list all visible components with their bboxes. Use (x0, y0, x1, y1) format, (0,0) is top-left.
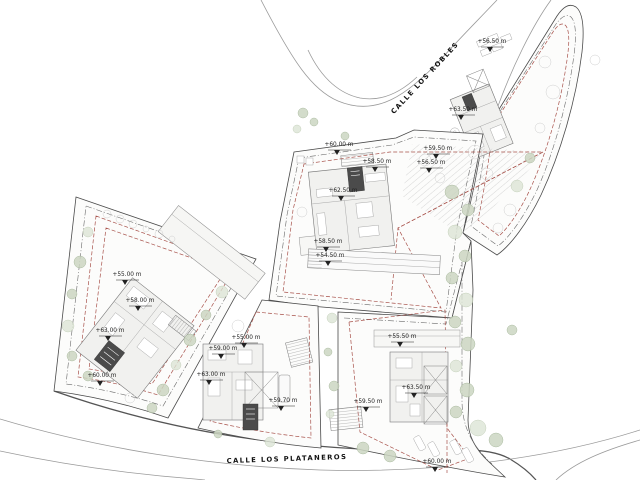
site-plan-canvas: CALLE LOS ROBLES CALLE LOS PLATANEROS +5… (0, 0, 640, 480)
tree (329, 381, 339, 391)
svg-text:+56.50 m: +56.50 m (417, 160, 446, 166)
tree (324, 348, 332, 356)
tree (357, 442, 369, 454)
svg-text:+58.00 m: +58.00 m (126, 298, 155, 304)
tree (298, 108, 308, 118)
shrub-outline (590, 55, 600, 65)
tree (327, 313, 337, 323)
svg-text:+55.00 m: +55.00 m (113, 272, 142, 278)
tree (449, 316, 461, 328)
svg-text:+54.50 m: +54.50 m (316, 253, 345, 259)
svg-text:+59.00 m: +59.00 m (209, 346, 238, 352)
tree (507, 325, 517, 335)
svg-text:+59.50 m: +59.50 m (354, 399, 383, 405)
tree (450, 360, 462, 372)
stair-core (243, 404, 258, 430)
tree (147, 403, 157, 413)
tree (511, 180, 523, 192)
tree (341, 132, 349, 140)
svg-text:+63.50 m: +63.50 m (449, 107, 478, 113)
svg-text:+58.50 m: +58.50 m (314, 239, 343, 245)
site-plan-drawing: CALLE LOS ROBLES CALLE LOS PLATANEROS +5… (0, 0, 640, 480)
svg-text:+60.00 m: +60.00 m (88, 373, 117, 379)
svg-text:+59.50 m: +59.50 m (424, 146, 453, 152)
tree (462, 204, 474, 216)
tree (459, 250, 471, 262)
tree (216, 286, 228, 298)
tree (83, 227, 93, 237)
tree (326, 410, 334, 418)
tree (384, 450, 396, 462)
svg-text:+63.00 m: +63.00 m (96, 328, 125, 334)
tree (157, 384, 169, 396)
tree (448, 225, 462, 239)
road-edge (556, 440, 640, 480)
tree (460, 383, 474, 397)
tree (201, 310, 211, 320)
tree (67, 351, 77, 361)
svg-text:+63.00 m: +63.00 m (197, 372, 226, 378)
svg-text:+55.50 m: +55.50 m (388, 334, 417, 340)
svg-text:+63.50 m: +63.50 m (402, 385, 431, 391)
tree (293, 125, 301, 133)
svg-text:+60.00 m: +60.00 m (423, 459, 452, 465)
tree (62, 320, 74, 332)
stair (329, 406, 363, 430)
tree (184, 334, 196, 346)
svg-text:+59.70 m: +59.70 m (269, 398, 298, 404)
road-edge (0, 451, 205, 480)
tree (265, 437, 275, 447)
svg-text:+55.00 m: +55.00 m (232, 335, 261, 341)
tree (489, 433, 503, 447)
bed (356, 202, 373, 219)
svg-text:+58.50 m: +58.50 m (363, 159, 392, 165)
tree (470, 420, 486, 436)
tree (310, 118, 318, 126)
road-edge (261, 0, 497, 106)
tree (214, 430, 222, 438)
street-name-plataneros: CALLE LOS PLATANEROS (227, 453, 348, 465)
road-edge (308, 50, 417, 99)
tree (459, 293, 473, 307)
svg-text:+60.00 m: +60.00 m (325, 142, 354, 148)
tree (525, 153, 535, 163)
svg-text:+62.50 m: +62.50 m (329, 188, 358, 194)
tree (461, 337, 475, 351)
svg-text:+56.50 m: +56.50 m (478, 39, 507, 45)
shrub-outline (232, 320, 244, 332)
street-name-robles: CALLE LOS ROBLES (390, 40, 461, 115)
tree (74, 256, 86, 268)
tree (450, 406, 462, 418)
tree (445, 185, 459, 199)
tree (67, 289, 77, 299)
tree (171, 360, 181, 370)
tree (446, 272, 458, 284)
